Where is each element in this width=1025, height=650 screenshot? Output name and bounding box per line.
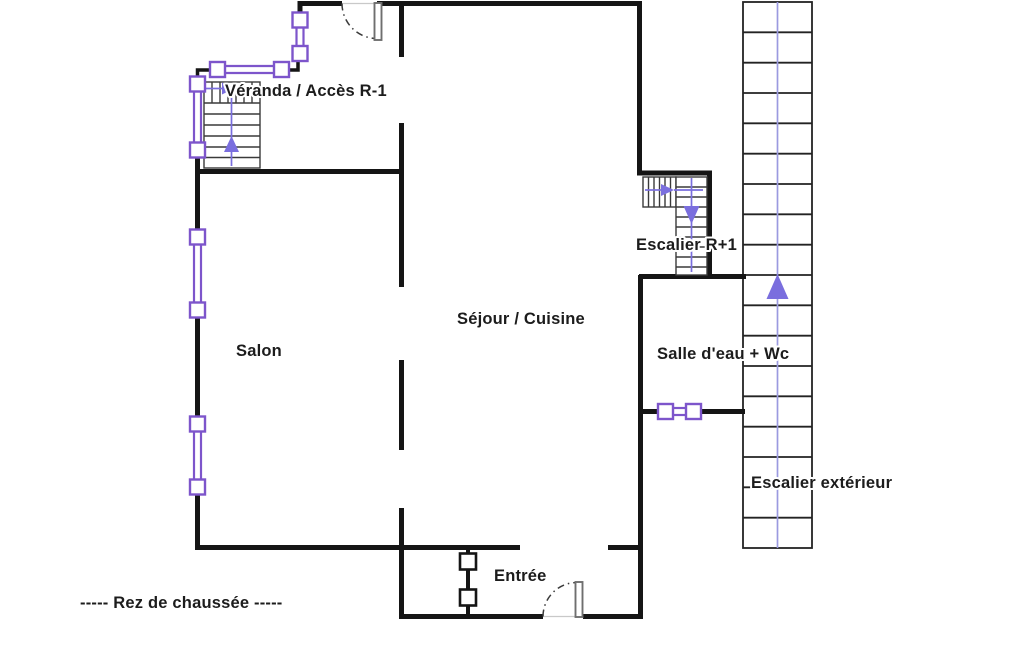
entree-window-node: [460, 590, 476, 606]
room-label-escalier-exterieur: Escalier extérieur: [751, 474, 893, 492]
window-node: [293, 13, 308, 28]
floor-plan-page: Véranda / Accès R-1 Salon Séjour / Cuisi…: [0, 0, 1025, 650]
interior-staircase-r1: [643, 177, 707, 275]
window-node: [658, 404, 673, 419]
floor-plan-canvas: Véranda / Accès R-1 Salon Séjour / Cuisi…: [0, 0, 1025, 650]
entree-window-node: [460, 554, 476, 570]
room-label-salon: Salon: [236, 342, 282, 360]
window-node: [190, 77, 205, 92]
room-label-veranda: Véranda / Accès R-1: [225, 82, 387, 100]
entree-fixed-window: [460, 548, 476, 616]
room-label-sejour-cuisine: Séjour / Cuisine: [457, 310, 585, 328]
window-node: [274, 62, 289, 77]
top-door-leaf: [375, 3, 382, 40]
window-node: [293, 46, 308, 61]
window-node: [190, 143, 205, 158]
entree-door-swing-arc: [543, 583, 577, 617]
window-node: [190, 417, 205, 432]
top-door-swing-arc: [342, 4, 377, 39]
exterior-staircase: [743, 2, 812, 548]
window-node: [190, 480, 205, 495]
window-node: [686, 404, 701, 419]
room-label-escalier-r1: Escalier R+1: [636, 236, 737, 254]
window-node: [190, 230, 205, 245]
room-label-entree: Entrée: [494, 567, 547, 585]
floor-caption: ----- Rez de chaussée -----: [80, 594, 283, 612]
window-node: [210, 62, 225, 77]
window-node: [190, 303, 205, 318]
entree-door-leaf: [576, 582, 583, 617]
room-label-salle-eau-wc: Salle d'eau + Wc: [657, 345, 789, 363]
